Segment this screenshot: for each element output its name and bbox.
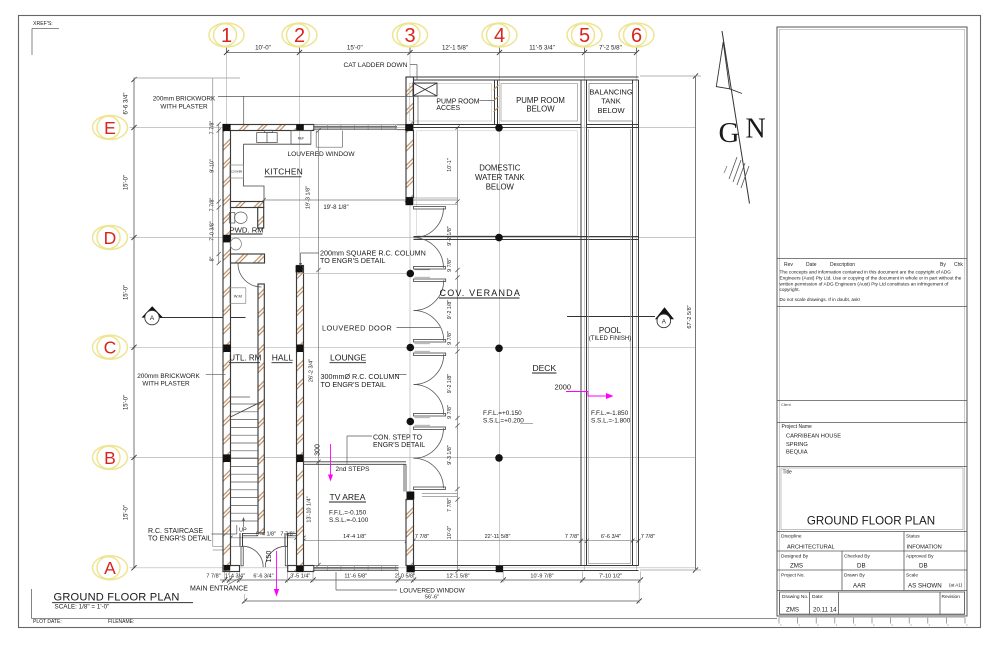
svg-text:150: 150	[266, 551, 273, 563]
svg-text:UP: UP	[239, 528, 247, 534]
svg-text:AS SHOWN: AS SHOWN	[908, 582, 942, 589]
svg-text:The concepts and information c: The concepts and information contained i…	[780, 270, 952, 275]
svg-text:Rev: Rev	[784, 262, 793, 268]
svg-text:Date:: Date:	[812, 594, 823, 600]
svg-text:4: 4	[494, 25, 505, 47]
svg-text:CARRIBEAN HOUSE: CARRIBEAN HOUSE	[786, 434, 841, 440]
svg-text:15'-0": 15'-0"	[124, 285, 130, 300]
svg-text:BELOW: BELOW	[526, 105, 555, 114]
svg-text:W.M: W.M	[234, 294, 242, 299]
svg-text:KITCHEN: KITCHEN	[265, 167, 304, 177]
svg-text:REF: REF	[298, 136, 304, 140]
svg-text:INFOMATION: INFOMATION	[907, 544, 942, 550]
svg-text:2'-0 5/8": 2'-0 5/8"	[395, 574, 415, 580]
svg-text:19'-3 1/8": 19'-3 1/8"	[306, 186, 312, 209]
svg-text:13'-10 1/4": 13'-10 1/4"	[307, 496, 313, 522]
svg-text:Date: Date	[806, 262, 817, 268]
svg-text:F.F.L.=-0.150: F.F.L.=-0.150	[329, 510, 367, 517]
svg-text:ENGR'S DETAIL: ENGR'S DETAIL	[373, 442, 425, 449]
svg-text:POOL: POOL	[599, 326, 622, 335]
svg-text:6'-6 3/4": 6'-6 3/4"	[601, 534, 621, 540]
svg-text:Checked By: Checked By	[844, 553, 870, 559]
svg-text:200mm BRICKWORK: 200mm BRICKWORK	[153, 96, 216, 103]
svg-text:10'-1": 10'-1"	[447, 158, 453, 172]
svg-text:6'-6 3/4": 6'-6 3/4"	[124, 93, 130, 115]
svg-text:F.F.L.=-1.850: F.F.L.=-1.850	[591, 410, 629, 417]
svg-text:Status: Status	[906, 534, 920, 540]
svg-text:SCALE: 1/8" = 1'-0": SCALE: 1/8" = 1'-0"	[55, 604, 110, 611]
svg-text:E: E	[104, 118, 116, 138]
svg-text:BELOW: BELOW	[486, 182, 515, 191]
svg-text:9 7/8": 9 7/8"	[447, 258, 453, 272]
svg-text:Scale: Scale	[906, 572, 918, 578]
svg-text:HALL: HALL	[272, 353, 294, 363]
svg-text:7 7/8": 7 7/8"	[206, 574, 220, 580]
svg-text:9'-2 1/8": 9'-2 1/8"	[447, 374, 453, 394]
svg-text:BEQUIA: BEQUIA	[786, 450, 808, 456]
svg-text:R.C. STAIRCASE: R.C. STAIRCASE	[148, 528, 203, 535]
svg-text:5: 5	[579, 25, 590, 47]
svg-text:FILENAME:: FILENAME:	[108, 619, 134, 625]
svg-text:LOUVERED WINDOW: LOUVERED WINDOW	[400, 588, 466, 595]
svg-text:COV. VERANDA: COV. VERANDA	[440, 288, 522, 298]
svg-text:CAT LADDER DOWN: CAT LADDER DOWN	[344, 62, 408, 69]
svg-text:19'-8 1/8": 19'-8 1/8"	[323, 205, 348, 211]
svg-text:7 7/8": 7 7/8"	[210, 198, 216, 212]
svg-text:2nd STEPS: 2nd STEPS	[336, 466, 371, 473]
svg-text:12'-1 5/8": 12'-1 5/8"	[446, 574, 469, 580]
svg-text:10'-0": 10'-0"	[447, 526, 453, 540]
svg-text:67'-2 5/8": 67'-2 5/8"	[687, 305, 693, 328]
svg-text:WITH PLASTER: WITH PLASTER	[142, 380, 190, 387]
svg-text:15'-0": 15'-0"	[347, 45, 363, 52]
svg-text:7 7/8": 7 7/8"	[447, 498, 453, 512]
svg-text:7'-2 5/8": 7'-2 5/8"	[599, 45, 622, 52]
svg-text:C: C	[104, 338, 117, 358]
svg-text:Client: Client	[781, 403, 792, 407]
svg-text:PLOT DATE:: PLOT DATE:	[33, 619, 62, 625]
svg-text:9'-2 1/8": 9'-2 1/8"	[447, 226, 453, 246]
svg-text:BALANCING: BALANCING	[589, 88, 633, 97]
svg-text:MAIN ENTRANCE: MAIN ENTRANCE	[190, 586, 248, 593]
svg-text:written permission of ADG Engi: written permission of ADG Engineers (Aus…	[780, 281, 950, 286]
svg-text:LOUVERED WINDOW: LOUVERED WINDOW	[288, 151, 356, 158]
svg-text:15'-0": 15'-0"	[124, 175, 130, 190]
svg-text:TO ENGR'S DETAIL: TO ENGR'S DETAIL	[148, 535, 212, 542]
svg-text:B: B	[104, 448, 116, 468]
svg-text:GROUND FLOOR PLAN: GROUND FLOOR PLAN	[54, 592, 180, 604]
svg-text:7 7/8": 7 7/8"	[210, 121, 216, 135]
svg-text:ARCHITECTURAL: ARCHITECTURAL	[787, 544, 835, 550]
svg-text:Chk: Chk	[954, 262, 963, 268]
svg-text:ACCES: ACCES	[436, 105, 460, 112]
svg-text:Designed By: Designed By	[781, 553, 809, 559]
svg-text:6: 6	[631, 25, 642, 47]
svg-text:G: G	[719, 117, 740, 149]
svg-text:PWD. RM: PWD. RM	[230, 225, 264, 234]
svg-text:SPRING: SPRING	[786, 442, 808, 448]
svg-text:9'-3 1/8": 9'-3 1/8"	[447, 445, 453, 465]
svg-text:Revision: Revision	[942, 594, 961, 600]
svg-text:DECK: DECK	[533, 363, 557, 373]
svg-text:Engineers (Aust) Pty Ltd. Use: Engineers (Aust) Pty Ltd. Use or copying…	[780, 275, 962, 280]
svg-text:LOUNGE: LOUNGE	[330, 353, 367, 363]
svg-text:TO ENGR'S DETAIL: TO ENGR'S DETAIL	[321, 380, 386, 389]
svg-text:12'-1 5/8": 12'-1 5/8"	[442, 45, 468, 52]
svg-text:Discipline: Discipline	[781, 534, 802, 540]
svg-text:Title: Title	[783, 470, 792, 476]
svg-text:Project Name: Project Name	[782, 424, 813, 430]
svg-text:UTL. RM: UTL. RM	[229, 354, 261, 363]
svg-text:TANK: TANK	[601, 97, 620, 106]
svg-text:A: A	[104, 558, 116, 578]
svg-text:2000: 2000	[555, 383, 571, 392]
svg-text:TO ENGR'S DETAIL: TO ENGR'S DETAIL	[320, 256, 385, 265]
svg-text:WITH PLASTER: WITH PLASTER	[160, 103, 208, 110]
svg-text:7 7/8": 7 7/8"	[415, 534, 429, 540]
svg-text:(TILED FINISH): (TILED FINISH)	[589, 336, 631, 342]
svg-text:300: 300	[315, 444, 322, 456]
svg-text:26'-2 3/4": 26'-2 3/4"	[309, 359, 315, 382]
svg-text:CON. STEP TO: CON. STEP TO	[373, 435, 423, 442]
svg-text:11'-5 3/4": 11'-5 3/4"	[529, 45, 555, 52]
svg-text:2: 2	[294, 25, 305, 47]
svg-text:A: A	[150, 315, 155, 322]
svg-text:N: N	[746, 114, 766, 145]
svg-text:Do not scale drawings. If in d: Do not scale drawings. If in doubt, ask!	[780, 297, 861, 302]
svg-text:3: 3	[404, 25, 415, 47]
svg-text:6'-6 3/4": 6'-6 3/4"	[253, 574, 273, 580]
svg-text:DB: DB	[919, 562, 928, 569]
svg-text:copyright.: copyright.	[780, 287, 800, 292]
svg-text:3'-5 1/4": 3'-5 1/4"	[290, 574, 310, 580]
svg-text:9 7/8": 9 7/8"	[447, 331, 453, 345]
svg-text:10'-0": 10'-0"	[255, 45, 271, 52]
svg-text:Project No.: Project No.	[781, 572, 805, 578]
svg-text:7 7/8": 7 7/8"	[565, 534, 579, 540]
svg-text:Drawing No.: Drawing No.	[782, 594, 808, 600]
svg-text:22'-11 5/8": 22'-11 5/8"	[485, 534, 511, 540]
svg-text:1: 1	[221, 25, 232, 47]
svg-text:By: By	[940, 262, 946, 268]
svg-text:COOKER: COOKER	[231, 170, 242, 174]
svg-text:11'-6 5/8": 11'-6 5/8"	[344, 574, 367, 580]
svg-text:20.11 14: 20.11 14	[813, 607, 837, 614]
svg-text:200mm BRICKWORK: 200mm BRICKWORK	[137, 373, 200, 380]
svg-text:9 7/8": 9 7/8"	[447, 405, 453, 419]
svg-text:8": 8"	[210, 256, 216, 261]
svg-text:Approved By: Approved By	[906, 553, 934, 559]
svg-text:DB: DB	[857, 562, 866, 569]
svg-text:7'-0 3/8": 7'-0 3/8"	[210, 221, 216, 241]
svg-text:Description: Description	[830, 262, 855, 268]
svg-text:7 7/8": 7 7/8"	[641, 534, 655, 540]
svg-text:7'-10 1/2": 7'-10 1/2"	[599, 574, 622, 580]
svg-text:XREF'S:: XREF'S:	[33, 21, 53, 27]
svg-text:ZMS: ZMS	[786, 607, 799, 614]
svg-text:DOMESTIC: DOMESTIC	[479, 164, 521, 173]
svg-text:WATER TANK: WATER TANK	[475, 173, 525, 182]
svg-text:ZMS: ZMS	[790, 562, 803, 569]
svg-text:14'-4 1/8": 14'-4 1/8"	[343, 534, 366, 540]
svg-text:AAR: AAR	[853, 582, 866, 589]
svg-text:D: D	[104, 228, 117, 248]
svg-text:LOUVERED DOOR: LOUVERED DOOR	[322, 324, 392, 333]
svg-text:S.S.L.=+0.200: S.S.L.=+0.200	[483, 417, 524, 424]
svg-text:9'-10": 9'-10"	[210, 159, 216, 173]
svg-text:TV AREA: TV AREA	[330, 492, 366, 502]
svg-text:GROUND FLOOR PLAN: GROUND FLOOR PLAN	[807, 515, 935, 528]
svg-text:9'-2 1/8": 9'-2 1/8"	[447, 300, 453, 320]
svg-text:56'-6": 56'-6"	[425, 595, 439, 601]
svg-text:10'-9 7/8": 10'-9 7/8"	[530, 574, 553, 580]
svg-text:S.S.L.=-1.800: S.S.L.=-1.800	[591, 417, 631, 424]
svg-text:15'-0": 15'-0"	[124, 395, 130, 410]
svg-text:F.F.L.=+0.150: F.F.L.=+0.150	[483, 410, 522, 417]
svg-text:15'-0": 15'-0"	[124, 505, 130, 520]
svg-text:S.S.L.=-0.100: S.S.L.=-0.100	[329, 517, 369, 524]
svg-text:(at A1): (at A1)	[949, 582, 963, 587]
svg-text:1'-4 3/4": 1'-4 3/4"	[225, 574, 245, 580]
svg-text:Drawn By: Drawn By	[844, 572, 865, 578]
svg-text:BELOW: BELOW	[597, 106, 625, 115]
